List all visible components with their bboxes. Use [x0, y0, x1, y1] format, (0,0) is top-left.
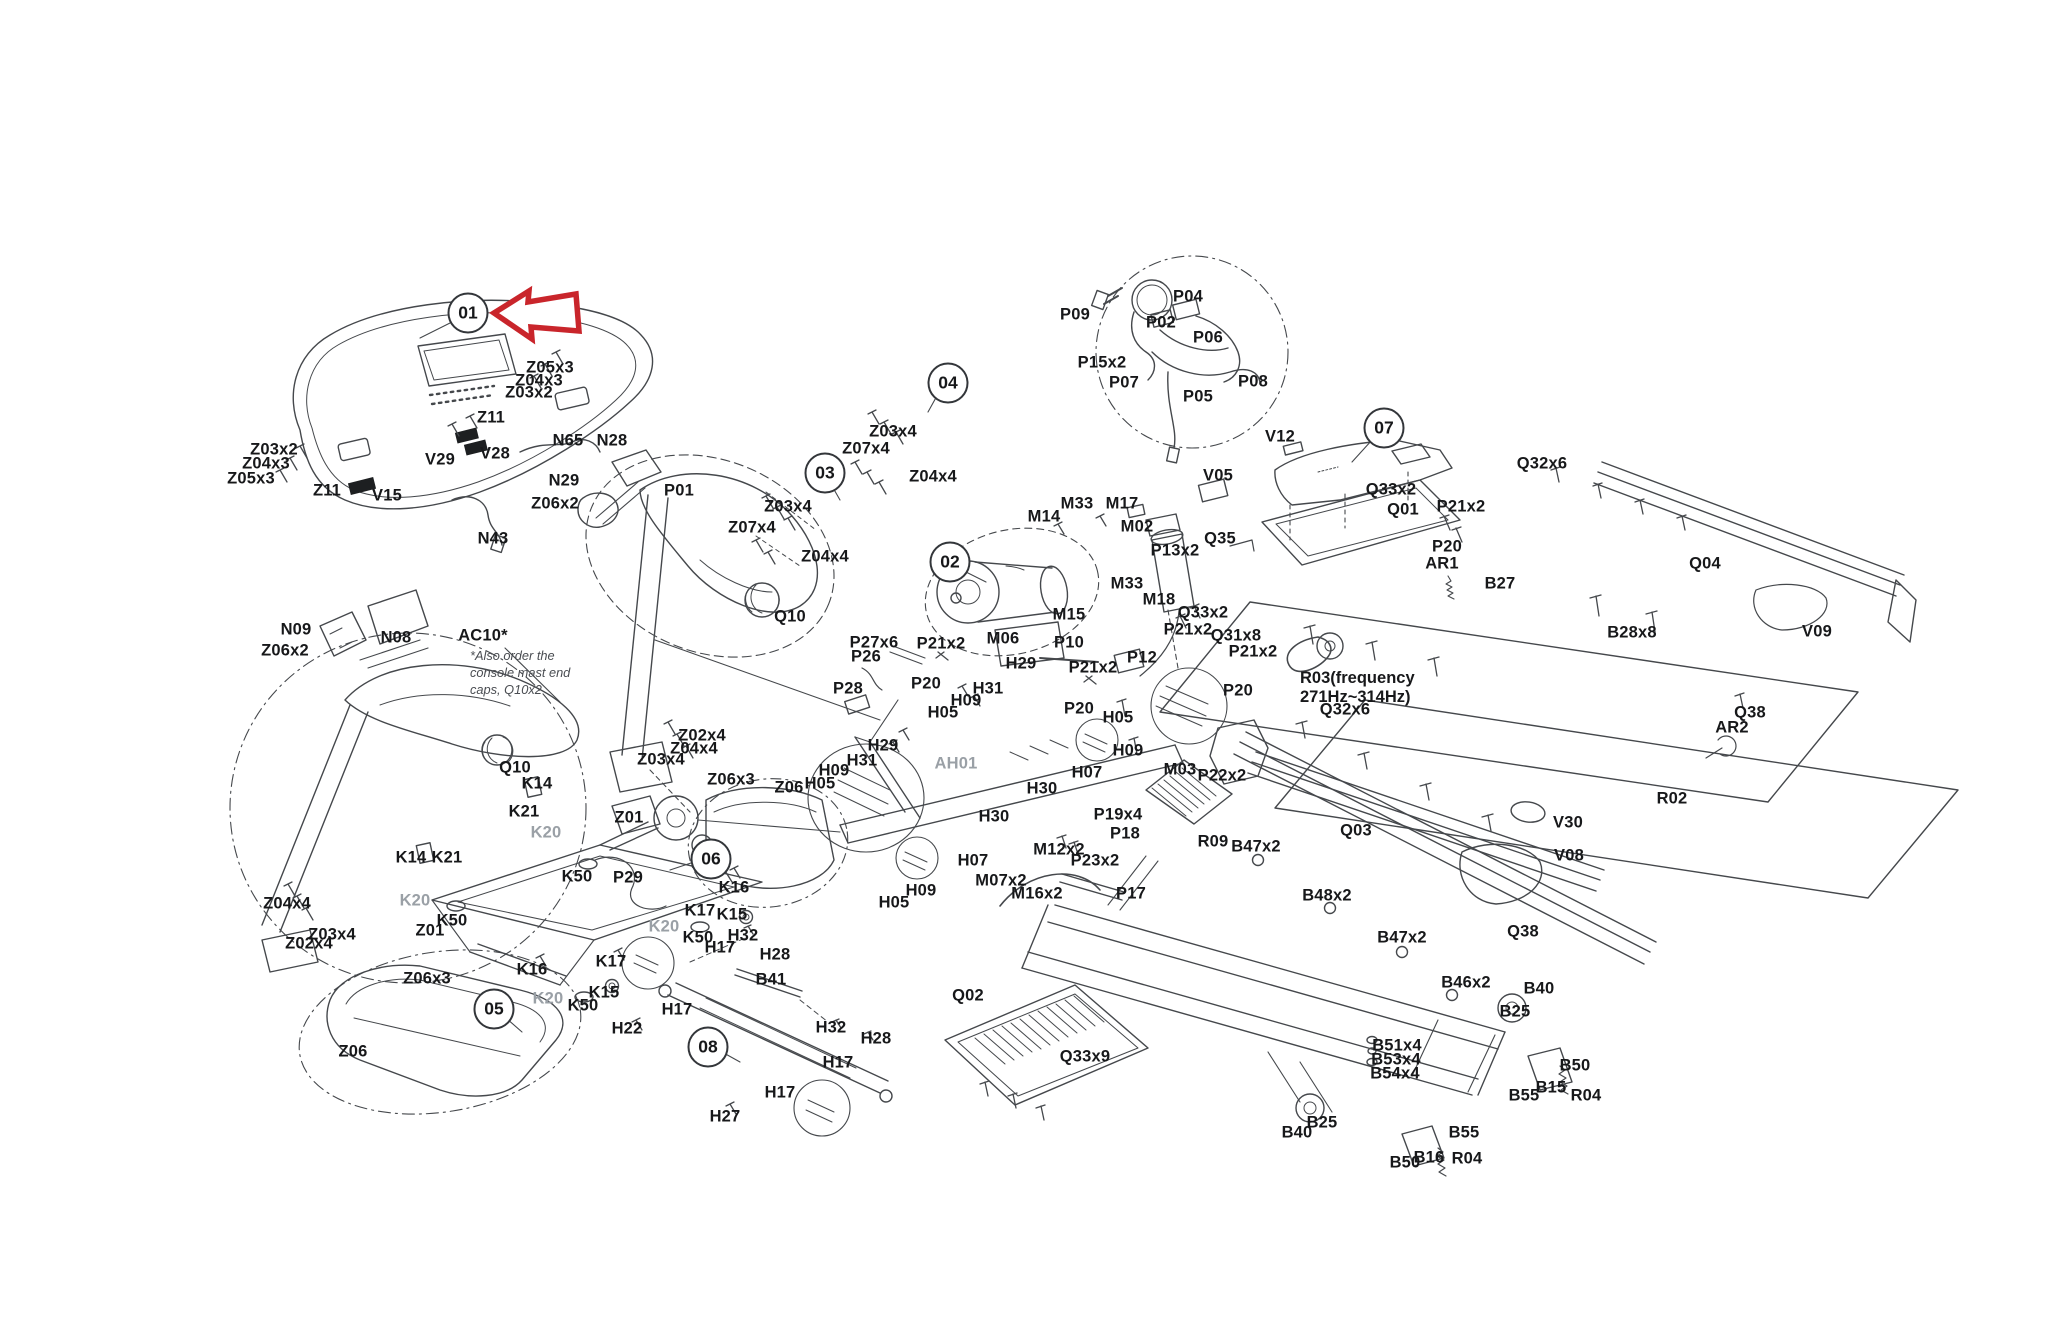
part-label-p04: P04: [1173, 288, 1203, 307]
part-label-p15x2: P15x2: [1078, 354, 1127, 373]
part-label-b25: B25: [1500, 1003, 1531, 1022]
callout-03: 03: [805, 453, 846, 494]
part-label-q03: Q03: [1340, 822, 1372, 841]
part-label-n43: N43: [478, 530, 509, 549]
red-arrow-icon: [494, 291, 579, 339]
part-label-r04: R04: [1452, 1150, 1483, 1169]
part-label-k20: K20: [400, 892, 431, 911]
part-label-z01: Z01: [415, 922, 444, 941]
part-label-k17: K17: [596, 953, 627, 972]
part-label-b41: B41: [756, 971, 787, 990]
callout-01: 01: [448, 293, 489, 334]
part-label-b50: B50: [1390, 1154, 1421, 1173]
part-label-m14: M14: [1028, 508, 1061, 527]
part-label-z06x2: Z06x2: [531, 495, 579, 514]
part-label-p20: P20: [1432, 538, 1462, 557]
part-label-h31: H31: [847, 752, 878, 771]
part-label-z04x4: Z04x4: [263, 895, 311, 914]
part-label-p17: P17: [1116, 885, 1146, 904]
part-label-p21x2: P21x2: [917, 635, 966, 654]
callout-05: 05: [474, 989, 515, 1030]
part-label-p22x2: P22x2: [1198, 767, 1247, 786]
part-label-b28x8: B28x8: [1607, 624, 1657, 643]
part-label-ac10-: AC10*: [458, 627, 508, 646]
part-label-p28: P28: [833, 680, 863, 699]
part-label-b54x4: B54x4: [1370, 1065, 1420, 1084]
part-label-m33: M33: [1061, 495, 1094, 514]
part-label-p05: P05: [1183, 388, 1213, 407]
part-label-b27: B27: [1485, 575, 1516, 594]
part-label-p01: P01: [664, 482, 694, 501]
part-label-v12: V12: [1265, 428, 1295, 447]
part-label-z03x4: Z03x4: [637, 751, 685, 770]
part-label-h05: H05: [805, 775, 836, 794]
part-label-q32x6: Q32x6: [1517, 455, 1568, 474]
part-label-ah01: AH01: [935, 755, 978, 774]
part-label-z03x4: Z03x4: [764, 498, 812, 517]
callout-04: 04: [928, 363, 969, 404]
part-label-k20: K20: [531, 824, 562, 843]
part-label-h07: H07: [1072, 764, 1103, 783]
part-label-k16: K16: [517, 961, 548, 980]
part-label-z03x2: Z03x2: [505, 384, 553, 403]
part-label-h17: H17: [705, 939, 736, 958]
part-label-b50: B50: [1560, 1057, 1591, 1076]
part-label-b46x2: B46x2: [1441, 974, 1491, 993]
part-label-p12: P12: [1127, 649, 1157, 668]
part-label-n29: N29: [549, 472, 580, 491]
part-label-ar1: AR1: [1425, 555, 1459, 574]
part-label-p21x2: P21x2: [1229, 643, 1278, 662]
part-label-k20: K20: [533, 990, 564, 1009]
part-label-z02x4: Z02x4: [285, 935, 333, 954]
part-label-q38: Q38: [1507, 923, 1539, 942]
callout-08: 08: [688, 1027, 729, 1068]
part-label-z06x2: Z06x2: [261, 642, 309, 661]
part-label-h09: H09: [1113, 742, 1144, 761]
part-label-v08: V08: [1554, 847, 1584, 866]
callout-07: 07: [1364, 408, 1405, 449]
part-label-p07: P07: [1109, 374, 1139, 393]
part-label-m15: M15: [1053, 606, 1086, 625]
part-label-r04: R04: [1571, 1087, 1602, 1106]
part-label-h22: H22: [612, 1020, 643, 1039]
part-label-n09: N09: [281, 621, 312, 640]
part-label-z06x3: Z06x3: [403, 970, 451, 989]
part-label-p08: P08: [1238, 373, 1268, 392]
part-label-q10: Q10: [774, 608, 806, 627]
part-label-v29: V29: [425, 451, 455, 470]
part-label-m18: M18: [1143, 591, 1176, 610]
part-label-k20: K20: [649, 918, 680, 937]
part-label-h27: H27: [710, 1108, 741, 1127]
part-label-k21: K21: [509, 803, 540, 822]
part-label-p26: P26: [851, 648, 881, 667]
part-label-q02: Q02: [952, 987, 984, 1006]
part-label-b55: B55: [1509, 1087, 1540, 1106]
part-label-n65: N65: [553, 432, 584, 451]
part-label-p21x2: P21x2: [1164, 621, 1213, 640]
diagram-canvas: Z05x3Z04x3Z03x2Z11N65N28V28V29N29Z06x2P0…: [0, 0, 2048, 1325]
part-label-b47x2: B47x2: [1231, 838, 1281, 857]
part-label-p21x2: P21x2: [1069, 659, 1118, 678]
part-label-k14: K14: [522, 775, 553, 794]
part-label-h05: H05: [879, 894, 910, 913]
part-label-b40: B40: [1524, 980, 1555, 999]
part-label-p29: P29: [613, 869, 643, 888]
part-label-h28: H28: [760, 946, 791, 965]
part-label-q35: Q35: [1204, 530, 1236, 549]
part-label-z06: Z06: [774, 779, 803, 798]
part-label-h09: H09: [906, 882, 937, 901]
part-label-k16: K16: [719, 879, 750, 898]
part-label-v30: V30: [1553, 814, 1583, 833]
part-label-m03: M03: [1164, 761, 1197, 780]
part-label-h28: H28: [861, 1030, 892, 1049]
part-label-q33x9: Q33x9: [1060, 1048, 1111, 1067]
part-label-q01: Q01: [1387, 501, 1419, 520]
part-label-m16x2: M16x2: [1011, 885, 1062, 904]
part-label-v28: V28: [480, 445, 510, 464]
part-label-b40: B40: [1282, 1124, 1313, 1143]
part-label-h17: H17: [662, 1001, 693, 1020]
part-label-h17: H17: [765, 1084, 796, 1103]
part-label-p18: P18: [1110, 825, 1140, 844]
part-label-b15: B15: [1536, 1079, 1567, 1098]
part-label-p19x4: P19x4: [1094, 806, 1143, 825]
part-label-b55: B55: [1449, 1124, 1480, 1143]
ac10-note: *Also order the console mast end caps, Q…: [470, 648, 570, 699]
r03-note: R03(frequency 271Hz~314Hz): [1300, 669, 1415, 708]
part-label-v09: V09: [1802, 623, 1832, 642]
part-label-z06x3: Z06x3: [707, 771, 755, 790]
part-label-h17: H17: [823, 1054, 854, 1073]
part-label-p23x2: P23x2: [1071, 852, 1120, 871]
part-label-p21x2: P21x2: [1437, 498, 1486, 517]
part-label-k15: K15: [717, 906, 748, 925]
part-label-ar2: AR2: [1715, 719, 1749, 738]
part-label-z07x4: Z07x4: [842, 440, 890, 459]
part-label-v05: V05: [1203, 467, 1233, 486]
part-label-p02: P02: [1146, 314, 1176, 333]
part-label-q04: Q04: [1689, 555, 1721, 574]
part-label-k14: K14: [396, 849, 427, 868]
part-label-k17: K17: [685, 902, 716, 921]
part-label-p10: P10: [1054, 634, 1084, 653]
part-label-z04x4: Z04x4: [909, 468, 957, 487]
part-label-m33: M33: [1111, 575, 1144, 594]
part-label-k21: K21: [432, 849, 463, 868]
part-label-h32: H32: [816, 1019, 847, 1038]
part-label-r09: R09: [1198, 833, 1229, 852]
part-label-z04x4: Z04x4: [801, 548, 849, 567]
part-label-z01: Z01: [614, 809, 643, 828]
callout-06: 06: [691, 839, 732, 880]
part-label-h29: H29: [1006, 655, 1037, 674]
part-label-z07x4: Z07x4: [728, 519, 776, 538]
part-label-z05x3: Z05x3: [227, 470, 275, 489]
part-label-b47x2: B47x2: [1377, 929, 1427, 948]
part-label-r02: R02: [1657, 790, 1688, 809]
part-label-m06: M06: [987, 630, 1020, 649]
part-label-h07: H07: [958, 852, 989, 871]
part-label-h30: H30: [1027, 780, 1058, 799]
part-label-v15: V15: [372, 487, 402, 506]
part-label-n08: N08: [381, 629, 412, 648]
part-label-b48x2: B48x2: [1302, 887, 1352, 906]
part-label-n28: N28: [597, 432, 628, 451]
part-label-p06: P06: [1193, 329, 1223, 348]
part-label-z11: Z11: [477, 409, 505, 428]
part-label-m17: M17: [1106, 495, 1139, 514]
part-label-h05: H05: [928, 704, 959, 723]
part-label-z06: Z06: [338, 1043, 367, 1062]
part-label-p20: P20: [1223, 682, 1253, 701]
part-label-p20: P20: [1064, 700, 1094, 719]
part-label-k50: K50: [562, 868, 593, 887]
part-label-p13x2: P13x2: [1151, 542, 1200, 561]
part-label-m02: M02: [1121, 518, 1154, 537]
part-label-h30: H30: [979, 808, 1010, 827]
callout-02: 02: [930, 542, 971, 583]
part-label-q33x2: Q33x2: [1366, 481, 1417, 500]
part-label-k50: K50: [568, 997, 599, 1016]
part-label-p20: P20: [911, 675, 941, 694]
part-label-h05: H05: [1103, 709, 1134, 728]
part-label-p09: P09: [1060, 306, 1090, 325]
part-label-z11: Z11: [313, 482, 341, 501]
